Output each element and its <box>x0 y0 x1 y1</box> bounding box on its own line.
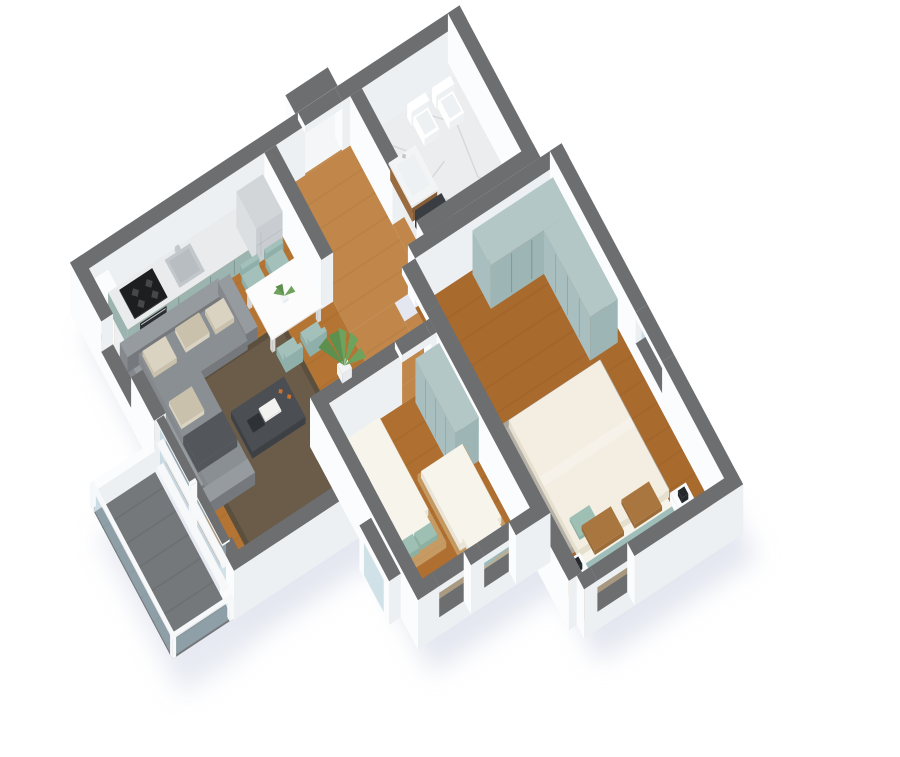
floor-plan-render <box>0 0 900 757</box>
floor-plan-stage <box>0 0 900 757</box>
